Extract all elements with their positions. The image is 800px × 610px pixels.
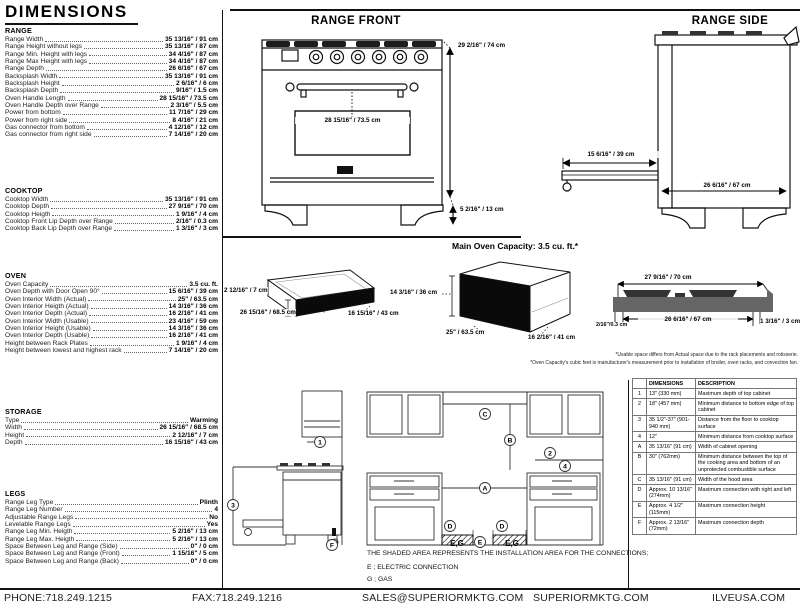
dotted-leader <box>87 129 167 130</box>
dotted-leader <box>84 48 163 49</box>
spec-label: Type <box>5 417 19 424</box>
spec-value: Plinth <box>200 499 218 506</box>
dotted-leader <box>88 300 175 301</box>
spec-value: 14 3/16" / 36 cm <box>169 303 218 310</box>
table-row: FApprox. 2 13/16" (72mm)Maximum connecti… <box>633 518 797 534</box>
row-dimension: Approx. 10 13/16" (274mm) <box>647 485 696 501</box>
leg-height-label: 5 2/16" / 13 cm <box>460 206 504 213</box>
spec-label: Levelable Range Legs <box>5 521 71 528</box>
drawer-width-label: 26 15/16" / 68.5 cm <box>240 309 296 316</box>
spec-row: Oven Interior Heigth (Actual)14 3/16" / … <box>5 303 218 310</box>
dotted-leader <box>68 100 158 101</box>
spec-value: 34 4/16" / 87 cm <box>169 58 218 65</box>
spec-row: Range Leg TypePlinth <box>5 499 218 506</box>
spec-value: 4 12/16" / 12 cm <box>169 124 218 131</box>
upper-cabinet-left <box>367 392 443 437</box>
dotted-leader <box>115 223 174 224</box>
spec-row: Backsplash Height2 6/16" / 6 cm <box>5 80 218 87</box>
row-dimension: 13" (330 mm) <box>647 389 696 399</box>
spec-row: Range Min. Height with legs34 4/16" / 87… <box>5 51 218 58</box>
dotted-leader <box>120 548 189 549</box>
header-description: DESCRIPTION <box>696 379 797 389</box>
section-title: OVEN <box>5 271 218 280</box>
spec-value: Warming <box>190 417 218 424</box>
dotted-leader <box>122 555 171 556</box>
dotted-leader <box>89 315 167 316</box>
spec-row: Oven Interior Depth (Usable)16 2/16" / 4… <box>5 332 218 339</box>
spec-row: Width26 15/16" / 68.5 cm <box>5 424 218 431</box>
row-description: Minimum distance to bottom edge of top c… <box>696 399 797 415</box>
callout-2: 2 <box>548 451 552 458</box>
dotted-leader <box>91 322 167 323</box>
spec-value: 1 3/16" / 3 cm <box>176 225 218 232</box>
page-title: DIMENSIONS <box>5 2 138 25</box>
spec-value: 28 15/16" / 73.5 cm <box>160 95 218 102</box>
row-index: 2 <box>633 399 647 415</box>
dimensions-table: DIMENSIONS DESCRIPTION 113" (330 mm)Maxi… <box>632 378 797 535</box>
spec-row: Height between lowest and highest rack7 … <box>5 347 218 354</box>
row-description: Maximum connection with right and left <box>696 485 797 501</box>
main-oven-capacity-heading: Main Oven Capacity: 3.5 cu. ft.* <box>452 241 578 251</box>
spec-row: Power from right side8 4/16" / 21 cm <box>5 117 218 124</box>
spec-label: Oven Interior Depth (Usable) <box>5 332 89 339</box>
backguard <box>784 27 799 45</box>
dotted-leader <box>89 63 167 64</box>
spec-row: Cooktop Heigth1 9/16" / 4 cm <box>5 211 218 218</box>
dotted-leader <box>73 526 205 527</box>
row-dimension: 18" (457 mm) <box>647 399 696 415</box>
spec-value: 8 4/16" / 21 cm <box>172 117 218 124</box>
spec-label: Oven Interior Depth (Actual) <box>5 310 87 317</box>
spec-label: Range Leg Max. Heigth <box>5 536 74 543</box>
spec-row: Space Between Leg and Range (Back)0" / 0… <box>5 558 218 565</box>
spec-label: Backsplash Depth <box>5 87 58 94</box>
table-row: B30" (762mm)Minimum distance between the… <box>633 452 797 475</box>
spec-value: 7 14/16" / 20 cm <box>169 131 218 138</box>
spec-row: Oven Interior Height (Usable)14 3/16" / … <box>5 325 218 332</box>
gas-connection-note: G ; GAS <box>367 576 392 583</box>
spec-row: Backsplash Width35 13/16" / 91 cm <box>5 73 218 80</box>
spec-value: 26 15/16" / 68.5 cm <box>160 424 218 431</box>
header-dimensions: DIMENSIONS <box>647 379 696 389</box>
right-foot <box>743 208 786 228</box>
callout-labels: 1 3 F C B 2 4 A D D E E,G E,G <box>231 412 567 550</box>
dotted-leader <box>60 92 174 93</box>
spec-value: 2 6/16" / 6 cm <box>176 80 218 87</box>
spec-row: Range Max Height with legs34 4/16" / 87 … <box>5 58 218 65</box>
range-side-body <box>562 27 799 228</box>
eg-label-left: E,G <box>450 539 464 548</box>
spec-value: 0" / 0 cm <box>191 558 218 565</box>
spec-value: 1 15/16" / 5 cm <box>172 550 218 557</box>
brand-badge <box>337 166 353 174</box>
back-lip-label: 1 3/16" / 3 cm <box>760 318 800 325</box>
drawer-height-label: 2 12/16" / 7 cm <box>224 287 268 294</box>
spec-value: 15 6/16" / 39 cm <box>169 288 218 295</box>
spec-value: 16 15/16" / 43 cm <box>165 439 218 446</box>
spec-label: Gas connector from right side <box>5 131 92 138</box>
spec-label: Oven Depth with Door Open 90° <box>5 288 100 295</box>
spec-value: 0" / 0 cm <box>191 543 218 550</box>
spec-label: Adjustable Range Legs <box>5 514 73 521</box>
callout-a: A <box>483 486 488 493</box>
installation-note: THE SHADED AREA REPRESENTS THE INSTALLAT… <box>367 550 648 557</box>
dotted-leader <box>52 215 174 216</box>
spec-row: Range Height without legs35 13/16" / 87 … <box>5 43 218 50</box>
table-row: 412"Minimum distance from cooktop surfac… <box>633 432 797 442</box>
row-description: Width of cabinet opening <box>696 442 797 452</box>
spec-value: 27 9/16" / 70 cm <box>169 203 218 210</box>
range-side-diagram <box>550 26 800 231</box>
spec-label: Range Leg Type <box>5 499 53 506</box>
section-title: COOKTOP <box>5 186 218 195</box>
mid-rule <box>222 236 521 238</box>
spec-value: 2/16" / 0.3 cm <box>176 218 218 225</box>
electric-connection-note: E ; ELECTRIC CONNECTION <box>367 564 458 571</box>
spec-label: Range Min. Height with legs <box>5 51 87 58</box>
spec-row: Levelable Range LegsYes <box>5 521 218 528</box>
row-description: Width of the hood area <box>696 475 797 485</box>
spec-value: 14 3/16" / 36 cm <box>169 325 218 332</box>
callout-e: E <box>478 540 483 547</box>
section-storage: STORAGE TypeWarming Width26 15/16" / 68.… <box>5 407 218 446</box>
dotted-leader <box>91 308 167 309</box>
dotted-leader <box>62 85 174 86</box>
spec-value: 11 7/16" / 29 cm <box>169 109 218 116</box>
spec-label: Height <box>5 432 24 439</box>
row-index: 3 <box>633 415 647 431</box>
callouts <box>228 409 571 551</box>
dotted-leader <box>89 55 167 56</box>
row-description: Minimum distance between the top of the … <box>696 452 797 475</box>
dotted-leader <box>55 504 197 505</box>
spec-row: Oven Interior Width (Actual)25" / 63.5 c… <box>5 296 218 303</box>
spec-label: Space Between Leg and Range (Front) <box>5 550 120 557</box>
table-row: EApprox. 4 1/2" (115mm)Maximum connectio… <box>633 501 797 517</box>
row-description: Minimum distance from cooktop surface <box>696 432 797 442</box>
range-side-small <box>243 463 343 545</box>
cooktop-width-label: 27 9/16" / 70 cm <box>618 274 718 281</box>
oven-interior-depth-label: 16 2/16" / 41 cm <box>528 334 575 341</box>
cooktop-inner-width-label: 26 6/16" / 67 cm <box>638 316 738 323</box>
row-dimension: 30" (762mm) <box>647 452 696 475</box>
table-row: 335 1/2"-37" (901-940 mm)Distance from t… <box>633 415 797 431</box>
row-description: Maximum depth of top cabinet <box>696 389 797 399</box>
spec-value: 16 2/16" / 41 cm <box>169 310 218 317</box>
dotted-leader <box>63 114 167 115</box>
top-rule <box>230 9 800 11</box>
footer-phone: PHONE:718.249.1215 <box>4 592 112 604</box>
spec-label: Width <box>5 424 22 431</box>
spec-value: 1 9/16" / 4 cm <box>176 340 218 347</box>
range-front-body <box>262 40 443 225</box>
dotted-leader <box>50 201 163 202</box>
spec-label: Oven Interior Height (Usable) <box>5 325 91 332</box>
dotted-leader <box>91 337 166 338</box>
footnote-oven-capacity: *Oven Capacity's cubic feet is manufactu… <box>440 360 798 366</box>
row-index: F <box>633 518 647 534</box>
side-view-group <box>233 391 343 545</box>
section-title: STORAGE <box>5 407 218 416</box>
oven-interior-height-label: 14 3/16" / 36 cm <box>390 289 437 296</box>
spec-label: Range Leg Number <box>5 506 63 513</box>
callout-d-right: D <box>500 524 505 531</box>
row-dimension: 35 13/16" (91 cm) <box>647 442 696 452</box>
spec-label: Range Height without legs <box>5 43 82 50</box>
dotted-leader <box>24 429 158 430</box>
spec-label: Cooktop Front Lip Depth over Range <box>5 218 113 225</box>
footer-email[interactable]: SALES@SUPERIORMKTG.COM <box>362 592 524 604</box>
spec-label: Backsplash Width <box>5 73 57 80</box>
upper-cabinet-right <box>527 392 603 437</box>
spec-value: 35 13/16" / 91 cm <box>165 196 218 203</box>
dotted-leader <box>94 136 167 137</box>
side-depth-label: 26 6/16" / 67 cm <box>677 182 777 189</box>
callout-f: F <box>330 543 334 550</box>
spec-value: 35 13/16" / 87 cm <box>165 43 218 50</box>
spec-label: Depth <box>5 439 23 446</box>
range-front-diagram <box>240 26 520 231</box>
spec-label: Oven Interior Width (Usable) <box>5 318 89 325</box>
spec-value: 34 4/16" / 87 cm <box>169 51 218 58</box>
section-cooktop: COOKTOP Cooktop Width35 13/16" / 91 cm C… <box>5 186 218 233</box>
spec-value: No <box>209 514 218 521</box>
section-legs: LEGS Range Leg TypePlinth Range Leg Numb… <box>5 489 218 565</box>
spec-value: 2 3/16" / 5.5 cm <box>171 102 218 109</box>
open-door-small <box>243 520 283 527</box>
spec-row: Height between Rack Plates1 9/16" / 4 cm <box>5 340 218 347</box>
dotted-leader <box>76 540 170 541</box>
spec-label: Oven Handle Length <box>5 95 66 102</box>
dotted-leader <box>25 444 163 445</box>
dotted-leader <box>90 345 174 346</box>
spec-row: Gas connector from bottom4 12/16" / 12 c… <box>5 124 218 131</box>
back-lip <box>767 289 773 312</box>
spec-label: Height between Rack Plates <box>5 340 88 347</box>
spec-row: Range Leg Number4 <box>5 506 218 513</box>
dotted-leader <box>51 208 167 209</box>
spec-label: Height between lowest and highest rack <box>5 347 122 354</box>
section-title: LEGS <box>5 489 218 498</box>
dotted-leader <box>121 563 189 564</box>
cooktop-ledge <box>655 35 797 45</box>
dotted-leader <box>50 286 187 287</box>
row-index: E <box>633 501 647 517</box>
header-index <box>633 379 647 389</box>
spec-row: Height2 12/16" / 7 cm <box>5 432 218 439</box>
table-row: 218" (457 mm)Minimum distance to bottom … <box>633 399 797 415</box>
spec-value: 5 2/16" / 13 cm <box>172 528 218 535</box>
dotted-leader <box>69 122 170 123</box>
spec-row: Range Width35 13/16" / 91 cm <box>5 36 218 43</box>
spec-label: Range Leg Min. Heigth <box>5 528 72 535</box>
spec-label: Power from right side <box>5 117 67 124</box>
callout-b: B <box>508 438 513 445</box>
spec-value: 23 4/16" / 59 cm <box>169 318 218 325</box>
spec-row: Oven Handle Depth over Range2 3/16" / 5.… <box>5 102 218 109</box>
callout-c: C <box>483 412 488 419</box>
dotted-leader <box>124 352 167 353</box>
section-range: RANGE Range Width35 13/16" / 91 cm Range… <box>5 26 218 139</box>
footer-website[interactable]: SUPERIORMKTG.COM <box>533 592 649 604</box>
spec-label: Range Depth <box>5 65 44 72</box>
section-oven: OVEN Oven Capacity3.5 cu. ft. Oven Depth… <box>5 271 218 354</box>
footnote-usable-space: *Usable space differs from Actual space … <box>440 352 798 358</box>
spec-value: 4 <box>214 506 218 513</box>
spec-row: Oven Interior Width (Usable)23 4/16" / 5… <box>5 318 218 325</box>
spec-label: Cooktop Depth <box>5 203 49 210</box>
row-dimension: Approx. 2 13/16" (72mm) <box>647 518 696 534</box>
row-index: 4 <box>633 432 647 442</box>
spec-row: Oven Depth with Door Open 90°15 6/16" / … <box>5 288 218 295</box>
spec-value: 25" / 63.5 cm <box>178 296 218 303</box>
spec-value: 26 6/16" / 67 cm <box>169 65 218 72</box>
spec-row: Cooktop Width35 13/16" / 91 cm <box>5 196 218 203</box>
spec-value: 9/16" / 1.5 cm <box>176 87 218 94</box>
spec-row: Space Between Leg and Range (Side)0" / 0… <box>5 543 218 550</box>
spec-value: 3.5 cu. ft. <box>189 281 218 288</box>
spec-row: Cooktop Back Lip Depth over Range1 3/16"… <box>5 225 218 232</box>
cooktop-slab <box>613 297 767 312</box>
front-lip-label: 2/16"/0.3 cm <box>596 322 627 328</box>
dotted-leader <box>26 436 170 437</box>
dotted-leader <box>75 518 207 519</box>
callout-d-left: D <box>448 524 453 531</box>
spec-label: Cooktop Width <box>5 196 48 203</box>
footer-fax: FAX:718.249.1216 <box>192 592 282 604</box>
table-row: C35 13/16" (91 cm)Width of the hood area <box>633 475 797 485</box>
spec-label: Oven Interior Width (Actual) <box>5 296 86 303</box>
left-foot <box>265 205 307 225</box>
spec-value: 7 14/16" / 20 cm <box>169 347 218 354</box>
row-index: 1 <box>633 389 647 399</box>
row-description: Maximum connection depth <box>696 518 797 534</box>
spec-label: Cooktop Back Lip Depth over Range <box>5 225 112 232</box>
row-dimension: 35 1/2"-37" (901-940 mm) <box>647 415 696 431</box>
spec-row: Range Leg Max. Heigth5 2/16" / 13 cm <box>5 536 218 543</box>
dotted-leader <box>74 533 170 534</box>
row-index: D <box>633 485 647 501</box>
spec-label: Range Width <box>5 36 43 43</box>
row-dimension: 12" <box>647 432 696 442</box>
row-dimension: Approx. 4 1/2" (115mm) <box>647 501 696 517</box>
callout-3: 3 <box>231 503 235 510</box>
dotted-leader <box>59 77 163 78</box>
spec-value: 1 9/16" / 4 cm <box>176 211 218 218</box>
door-open-depth-label: 15 6/16" / 39 cm <box>561 151 661 158</box>
spec-value: 35 13/16" / 91 cm <box>165 36 218 43</box>
spec-value: 35 13/16" / 91 cm <box>165 73 218 80</box>
spec-value: 2 12/16" / 7 cm <box>172 432 218 439</box>
eg-label-right: E,G <box>505 539 519 548</box>
spec-value: 5 2/16" / 13 cm <box>172 536 218 543</box>
callout-4: 4 <box>563 464 567 471</box>
spec-row: Gas connector from right side7 14/16" / … <box>5 131 218 138</box>
row-dimension: 35 13/16" (91 cm) <box>647 475 696 485</box>
base-cabinet-right <box>527 473 600 545</box>
table-row: 113" (330 mm)Maximum depth of top cabine… <box>633 389 797 399</box>
spec-label: Gas connector from bottom <box>5 124 85 131</box>
footer-website-ilve[interactable]: ILVEUSA.COM <box>712 592 785 604</box>
dotted-leader <box>21 422 188 423</box>
row-index: C <box>633 475 647 485</box>
dotted-leader <box>101 107 169 108</box>
spec-row: Oven Handle Length28 15/16" / 73.5 cm <box>5 95 218 102</box>
spec-label: Power from bottom <box>5 109 61 116</box>
connector-box <box>332 528 336 536</box>
spec-label: Space Between Leg and Range (Side) <box>5 543 118 550</box>
spec-label: Backsplash Height <box>5 80 60 87</box>
spec-value: 16 2/16" / 41 cm <box>169 332 218 339</box>
spec-row: Depth16 15/16" / 43 cm <box>5 439 218 446</box>
open-door <box>562 171 658 191</box>
row-description: Maximum connection height <box>696 501 797 517</box>
spec-row: Backsplash Depth9/16" / 1.5 cm <box>5 87 218 94</box>
upper-cabinet <box>302 391 342 437</box>
section-title: RANGE <box>5 26 218 35</box>
table-header-row: DIMENSIONS DESCRIPTION <box>633 379 797 389</box>
spec-row: Power from bottom11 7/16" / 29 cm <box>5 109 218 116</box>
table-row: DApprox. 10 13/16" (274mm)Maximum connec… <box>633 485 797 501</box>
spec-label: Oven Interior Heigth (Actual) <box>5 303 89 310</box>
spec-row: TypeWarming <box>5 417 218 424</box>
spec-row: Cooktop Depth27 9/16" / 70 cm <box>5 203 218 210</box>
footer-rule <box>0 588 800 590</box>
row-index: A <box>633 442 647 452</box>
dotted-leader <box>65 511 213 512</box>
right-foot <box>401 205 443 225</box>
spec-row: Space Between Leg and Range (Front)1 15/… <box>5 550 218 557</box>
base-cabinet-left <box>367 473 442 545</box>
left-foot <box>662 208 705 228</box>
dotted-leader <box>45 41 163 42</box>
range-front-dim-arrows <box>443 41 453 224</box>
spec-label: Oven Handle Depth over Range <box>5 102 99 109</box>
row-index: B <box>633 452 647 475</box>
callout-1: 1 <box>318 440 322 447</box>
dotted-leader <box>102 293 167 294</box>
dotted-leader <box>46 70 167 71</box>
burner-shapes <box>623 290 737 297</box>
spec-row: Range Depth26 6/16" / 67 cm <box>5 65 218 72</box>
spec-label: Space Between Leg and Range (Back) <box>5 558 119 565</box>
table-row: A35 13/16" (91 cm)Width of cabinet openi… <box>633 442 797 452</box>
spec-value: Yes <box>207 521 218 528</box>
spec-label: Cooktop Heigth <box>5 211 50 218</box>
row-description: Distance from the floor to cooktop surfa… <box>696 415 797 431</box>
spec-row: Adjustable Range LegsNo <box>5 514 218 521</box>
oven-handle-length-label: 28 15/16" / 73.5 cm <box>295 117 410 124</box>
spec-row: Range Leg Min. Heigth5 2/16" / 13 cm <box>5 528 218 535</box>
dotted-leader <box>93 330 167 331</box>
range-front-height-label: 29 2/16" / 74 cm <box>458 42 505 49</box>
spec-row: Oven Interior Depth (Actual)16 2/16" / 4… <box>5 310 218 317</box>
dotted-leader <box>114 230 174 231</box>
spec-row: Cooktop Front Lip Depth over Range2/16" … <box>5 218 218 225</box>
oven-interior-width-label: 25" / 63.5 cm <box>446 329 484 336</box>
spec-label: Range Max Height with legs <box>5 58 87 65</box>
